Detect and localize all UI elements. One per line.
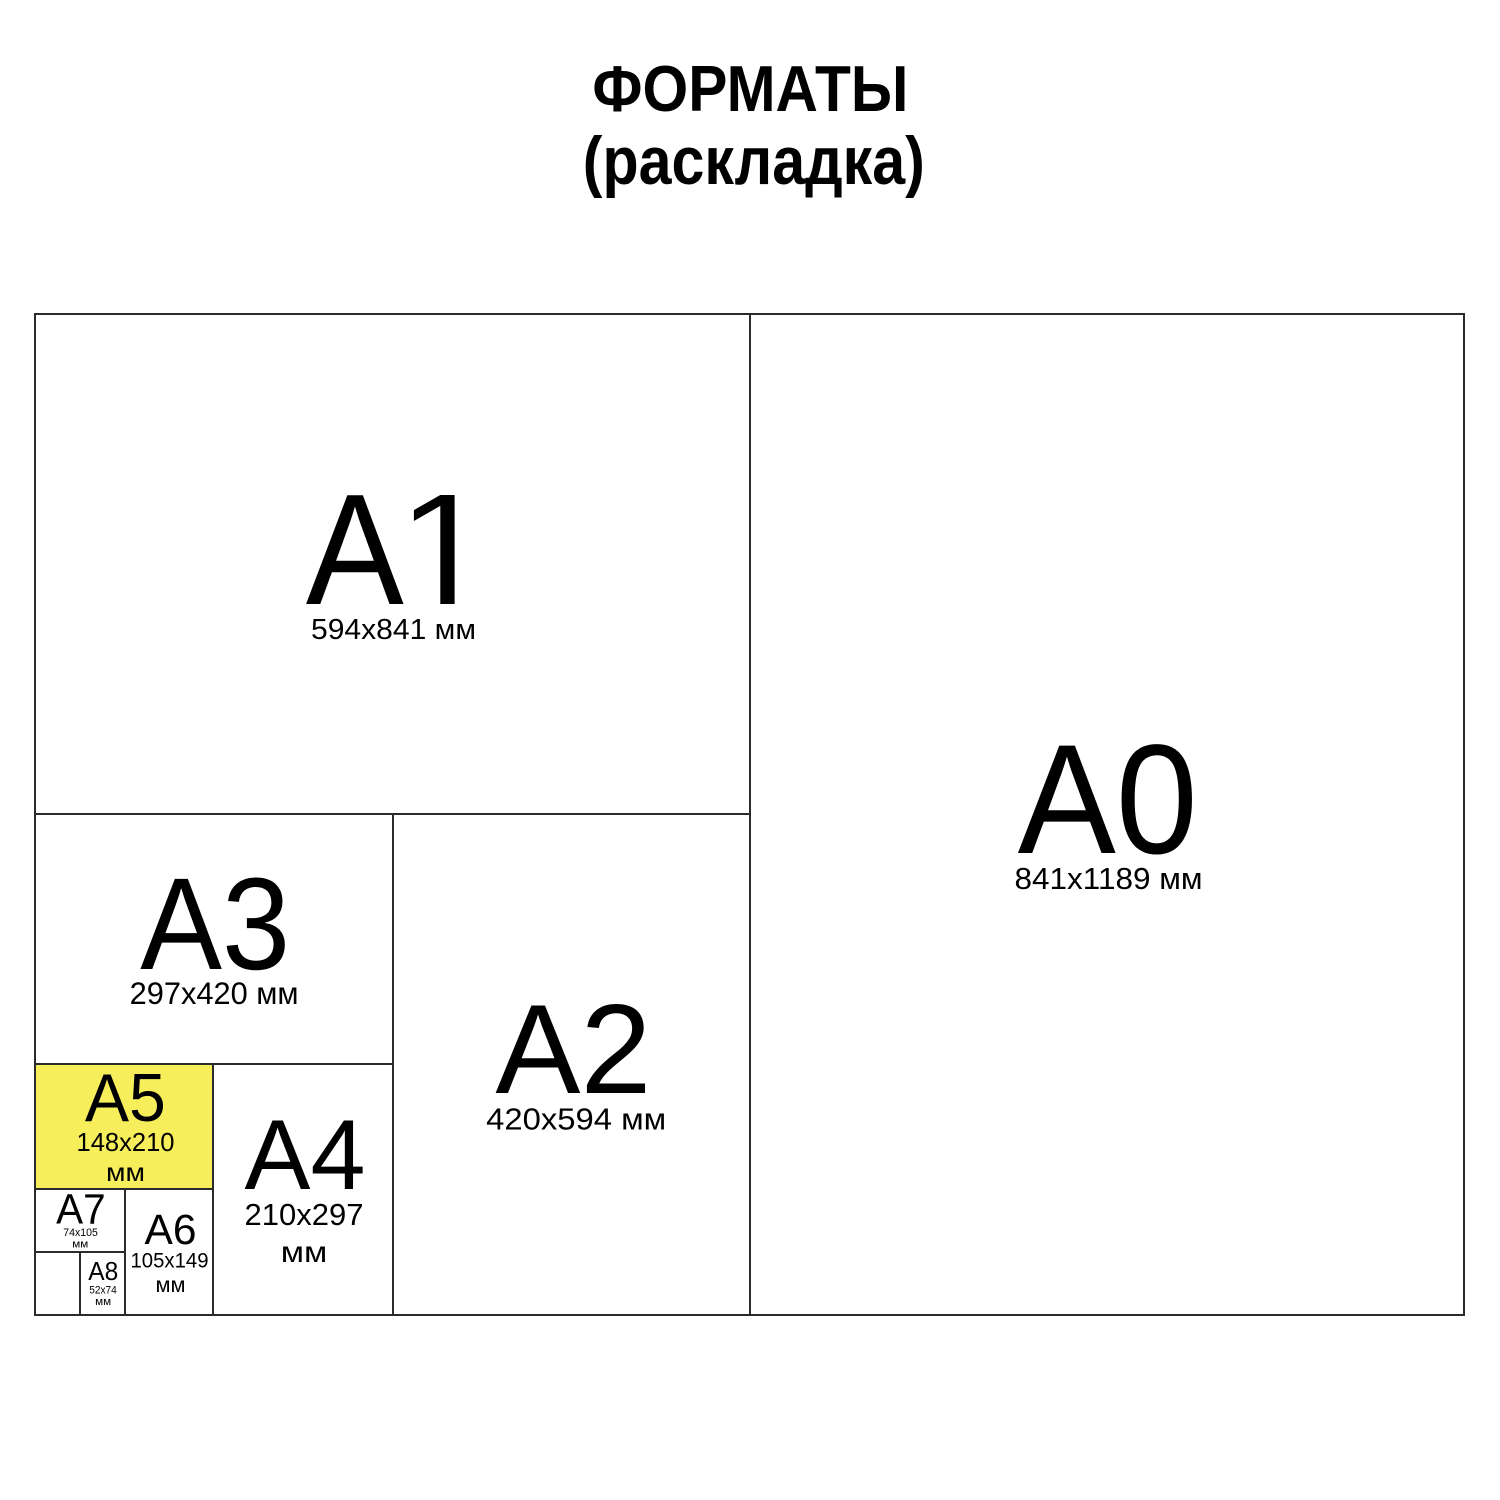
svg-text:74x105: 74x105 [63,1227,98,1239]
svg-text:мм: мм [281,1236,328,1269]
svg-text:594x841 мм: 594x841 мм [311,614,476,646]
svg-text:A2: A2 [495,978,651,1120]
svg-text:105x149: 105x149 [131,1249,209,1273]
svg-text:A6: A6 [145,1206,197,1254]
svg-text:мм: мм [106,1157,145,1187]
svg-text:210x297: 210x297 [245,1197,364,1232]
svg-text:420x594 мм: 420x594 мм [486,1102,666,1137]
svg-text:297x420 мм: 297x420 мм [130,975,299,1011]
svg-text:148x210: 148x210 [77,1127,175,1157]
svg-text:мм: мм [95,1296,111,1308]
svg-text:(раскладка): (раскладка) [583,123,925,199]
svg-text:A: A [306,462,405,638]
svg-text:A5: A5 [85,1060,166,1136]
svg-text:мм: мм [156,1273,186,1297]
svg-text:52x74: 52x74 [89,1284,117,1296]
svg-text:A8: A8 [88,1256,118,1286]
svg-text:841x1189 мм: 841x1189 мм [1015,861,1203,896]
svg-text:мм: мм [72,1239,88,1251]
svg-text:ФОРМАТЫ: ФОРМАТЫ [592,52,908,125]
svg-text:A4: A4 [245,1099,366,1210]
